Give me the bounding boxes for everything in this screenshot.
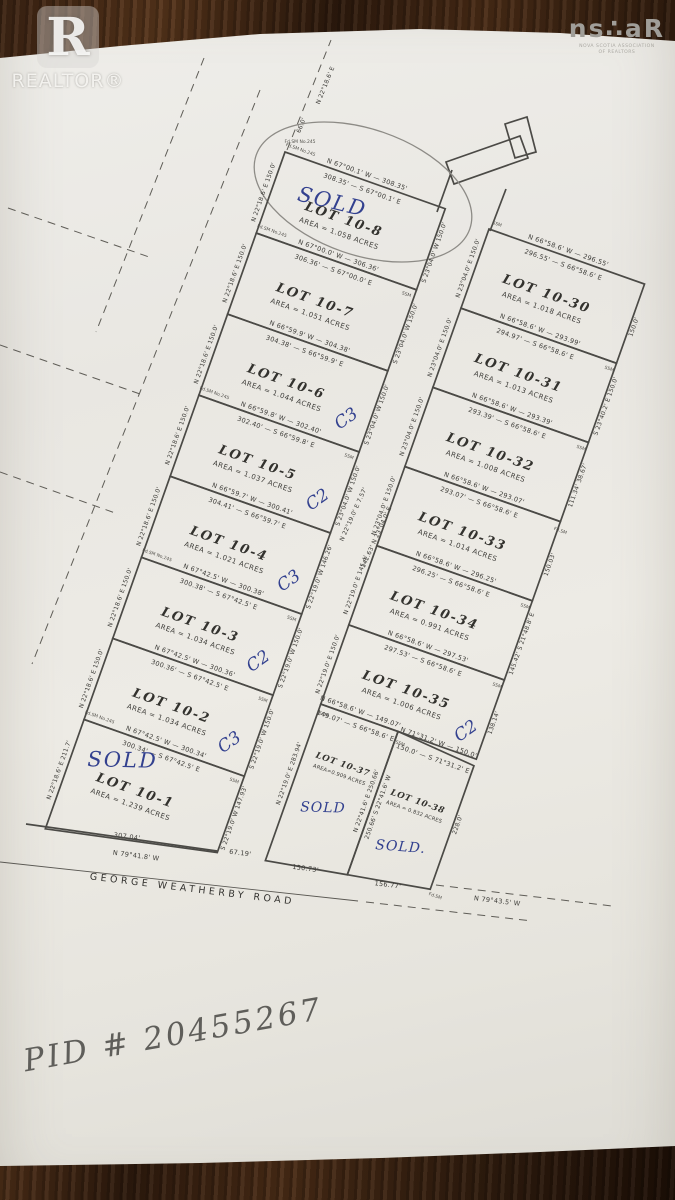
right-lot-column: N 66°58.6' W — 296.55' 296.55' — S 66°58… [256, 216, 661, 921]
junction-width-label: 67.19' [229, 848, 252, 859]
side-bearing-label: S 22°19.0' W 150.0' [277, 627, 305, 690]
survey-marker-label: SSM [576, 444, 587, 453]
survey-marker-label: SSM [229, 777, 240, 786]
realtor-r-icon: R [37, 6, 99, 68]
survey-marker-label: Fd.SM No.245 [84, 710, 115, 726]
turnaround-bar [446, 136, 528, 184]
survey-marker-label: SSM [519, 602, 530, 611]
survey-marker-label: SSM [491, 220, 502, 229]
road-edge [26, 824, 217, 851]
survey-marker-label: SSM [343, 452, 354, 461]
survey-marker-label: Fd.SM No.245 [256, 223, 287, 239]
class-annotation: C2 [302, 485, 333, 515]
side-bearing-label: 228.0' [451, 814, 464, 835]
road-edge [437, 170, 452, 212]
side-bearing-label: S 23°40.2' E 150.0' [592, 376, 619, 437]
side-bearing-label: 111.34' 38.67' [567, 462, 589, 508]
side-bearing-label: S 23°04.0' W 150.0' [392, 302, 420, 365]
frontage-label: 156.77' [374, 879, 401, 890]
road-edge-dashed [436, 885, 612, 906]
side-bearing-label: S 23°04.0' W 150.0' [363, 383, 391, 446]
survey-marker-label: SSM [604, 365, 615, 374]
survey-marker-label: Fd.SM No.245 [141, 547, 172, 563]
top-extension: N 22°18.6' E 66.0' Fd.SM No.245 [284, 40, 336, 150]
frontage-label: 150.73' [292, 863, 319, 874]
road-name: GEORGE WEATHERBY ROAD [89, 871, 295, 907]
pid-handwritten-note: PID # 20455267 [20, 991, 326, 1079]
frontage-label: N 79°41.8' W [112, 849, 160, 863]
sold-annotation: SOLD [300, 799, 346, 816]
survey-plan-drawing: N 22°18.6' E 66.0' Fd.SM No.245 N 67°00.… [0, 0, 675, 1200]
left-lot-column: N 67°00.1' W — 308.35' 308.35' — S 67°00… [35, 139, 457, 892]
survey-marker-label: Fd.SM No.245 [199, 385, 230, 401]
sold-annotation: SOLD [87, 747, 158, 773]
dashed-line [0, 472, 118, 514]
class-annotation: C3 [273, 566, 304, 596]
side-bearing-label: N 22°19.0' E 283.94' [275, 741, 304, 806]
side-bearing-label: S 22°19.0' W 150.0' [248, 708, 276, 771]
sold-annotation: SOLD. [375, 837, 427, 857]
side-bearing-label: S 23°04.0' W 150.0' [421, 221, 449, 284]
nsar-subtitle-1: NOVA SCOTIA ASSOCIATION [569, 44, 665, 49]
road-bearing-label: N 79°43.5' W [474, 894, 522, 908]
class-annotation: C2 [243, 646, 274, 676]
class-annotation: C3 [214, 727, 245, 757]
survey-marker-label: SSM [257, 696, 268, 705]
realtor-wordmark: REALTOR® [8, 70, 128, 92]
dashed-line [8, 208, 152, 258]
side-bearing-label: S 22°19.0' W 146.26' [305, 544, 334, 610]
nsar-wordmark: ns∴aR [569, 14, 665, 43]
nsar-subtitle-2: OF REALTORS [569, 50, 665, 55]
class-annotation: C3 [331, 404, 362, 434]
survey-marker-label: SSM [491, 681, 502, 690]
realtor-logo: R REALTOR® [8, 6, 128, 92]
survey-marker-label: SSM [401, 290, 412, 299]
side-bearing-label: 150.0' [627, 316, 640, 337]
nsar-logo: ns∴aR NOVA SCOTIA ASSOCIATION OF REALTOR… [569, 14, 665, 55]
dashed-line [96, 58, 204, 332]
survey-marker-label: SSM [286, 615, 297, 624]
side-bearing-label: 145.42' S 21°48.8' E [508, 612, 537, 676]
class-annotation: C2 [450, 716, 481, 746]
dashed-line [0, 345, 140, 394]
survey-marker-label: Fd.SM [428, 891, 443, 901]
side-bearing-label: S 22°19.0' W 147.93' [220, 785, 249, 851]
